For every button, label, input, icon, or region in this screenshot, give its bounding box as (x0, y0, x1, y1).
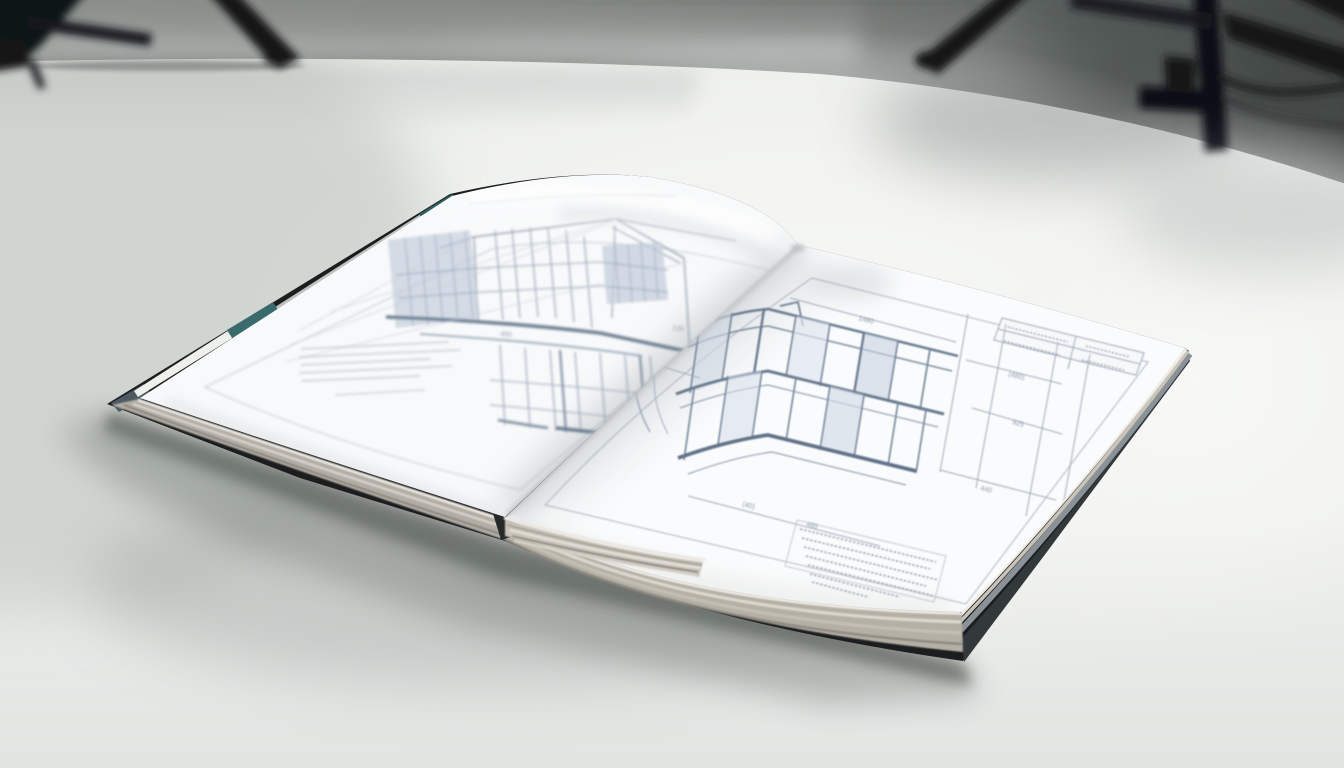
svg-text:450: 450 (500, 331, 512, 339)
svg-text:120: 120 (672, 325, 684, 333)
